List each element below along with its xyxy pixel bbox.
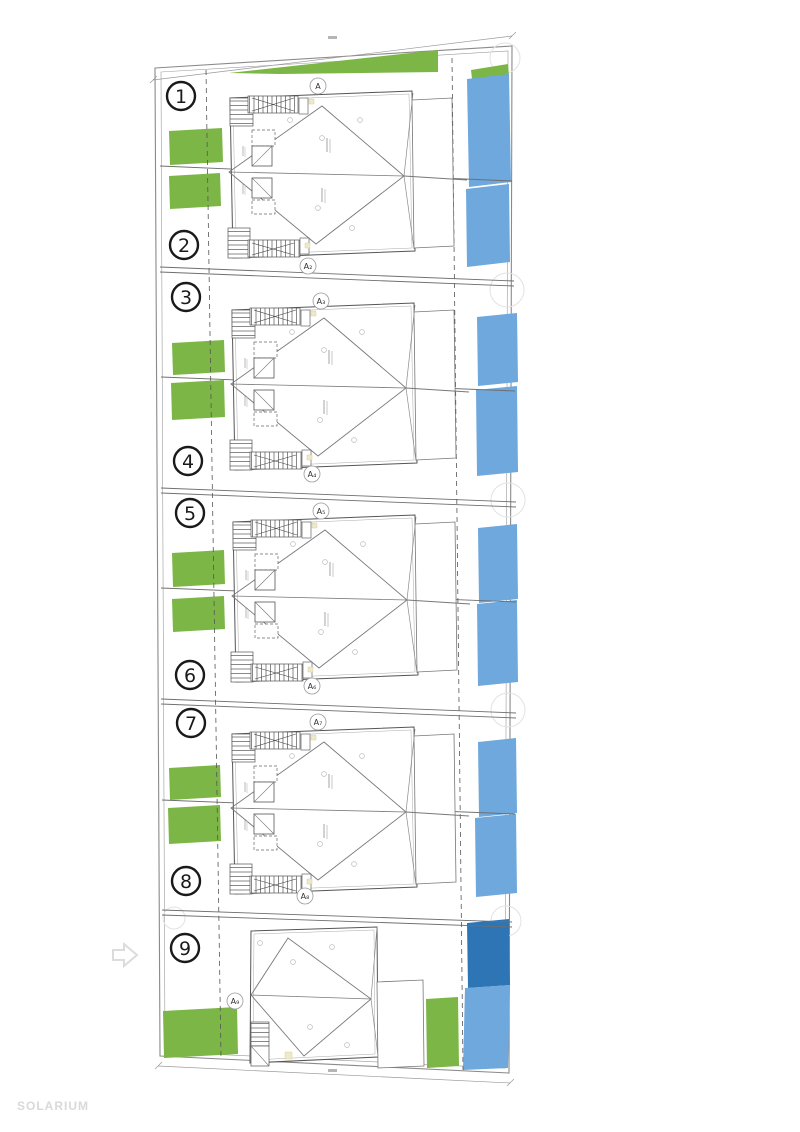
svg-text:A₇: A₇ bbox=[314, 718, 323, 727]
svg-text:3: 3 bbox=[180, 287, 192, 309]
svg-text:A₃: A₃ bbox=[317, 297, 326, 306]
unit-badge-8: 8 bbox=[172, 867, 200, 895]
garden-unit-3 bbox=[172, 340, 225, 375]
section-marker-a4: A₄ bbox=[304, 466, 320, 482]
garden-unit-6 bbox=[172, 596, 225, 632]
pool-unit-9-dark bbox=[467, 919, 510, 988]
pool-unit-8 bbox=[475, 814, 517, 897]
block-units-3-4 bbox=[230, 303, 469, 470]
watermark-label: SOLARIUM bbox=[17, 1099, 89, 1113]
unit-badge-3: 3 bbox=[172, 283, 200, 311]
svg-text:A₅: A₅ bbox=[317, 507, 326, 516]
pool-unit-1 bbox=[467, 74, 511, 187]
unit-badge-5: 5 bbox=[176, 499, 204, 527]
block-units-5-6 bbox=[231, 515, 470, 682]
svg-text:A: A bbox=[315, 82, 321, 91]
section-marker-a6: A₆ bbox=[304, 678, 320, 694]
svg-text:A₉: A₉ bbox=[231, 997, 240, 1006]
pool-unit-7 bbox=[478, 738, 517, 817]
unit-badge-6: 6 bbox=[176, 661, 204, 689]
garden-unit-9-left bbox=[163, 1007, 238, 1058]
pool-unit-6 bbox=[477, 600, 518, 686]
site-plan-drawing: A A₂ A₃ A₄ A₅ A₆ A₇ A₈ A₉ 1 2 3 4 5 6 7 … bbox=[0, 0, 800, 1132]
pool-unit-3 bbox=[477, 313, 518, 386]
section-marker-a5: A₅ bbox=[313, 503, 329, 519]
svg-text:A₄: A₄ bbox=[308, 470, 317, 479]
block-units-7-8 bbox=[230, 727, 469, 894]
svg-text:A₆: A₆ bbox=[308, 682, 317, 691]
svg-text:4: 4 bbox=[182, 451, 194, 473]
pool-unit-4 bbox=[476, 386, 518, 476]
garden-unit-4 bbox=[171, 380, 225, 420]
unit-badge-1: 1 bbox=[167, 82, 195, 110]
section-marker-a7: A₇ bbox=[310, 714, 326, 730]
svg-text:5: 5 bbox=[184, 503, 196, 525]
garden-unit-9-right bbox=[426, 997, 459, 1068]
stair-unit-9 bbox=[251, 1022, 269, 1046]
direction-arrow-icon bbox=[113, 944, 137, 966]
unit-badge-9: 9 bbox=[171, 934, 199, 962]
pool-unit-5 bbox=[478, 524, 518, 603]
svg-text:9: 9 bbox=[179, 938, 191, 960]
unit-badge-4: 4 bbox=[174, 447, 202, 475]
svg-text:8: 8 bbox=[180, 871, 192, 893]
garden-unit-2 bbox=[169, 173, 221, 209]
svg-text:2: 2 bbox=[178, 235, 190, 257]
garden-unit-1 bbox=[169, 128, 223, 165]
section-marker-a8: A₈ bbox=[297, 888, 313, 904]
garden-unit-8 bbox=[168, 805, 221, 844]
pool-unit-9-light bbox=[463, 985, 510, 1070]
site-plan-page: A A₂ A₃ A₄ A₅ A₆ A₇ A₈ A₉ 1 2 3 4 5 6 7 … bbox=[0, 0, 800, 1132]
svg-text:A₂: A₂ bbox=[304, 262, 313, 271]
svg-text:6: 6 bbox=[184, 665, 196, 687]
section-marker-a2: A₂ bbox=[300, 258, 316, 274]
pool-unit-2 bbox=[466, 184, 510, 267]
block-units-1-2 bbox=[228, 91, 467, 258]
section-marker-a9: A₉ bbox=[227, 993, 243, 1009]
svg-text:A₈: A₈ bbox=[301, 892, 310, 901]
unit-badge-7: 7 bbox=[177, 709, 205, 737]
svg-text:7: 7 bbox=[185, 713, 197, 735]
svg-text:1: 1 bbox=[175, 86, 187, 108]
garden-unit-7 bbox=[169, 765, 221, 800]
garden-unit-5 bbox=[172, 550, 225, 587]
section-marker-a3: A₃ bbox=[313, 293, 329, 309]
section-marker-a1: A bbox=[310, 78, 326, 94]
unit-badge-2: 2 bbox=[170, 231, 198, 259]
